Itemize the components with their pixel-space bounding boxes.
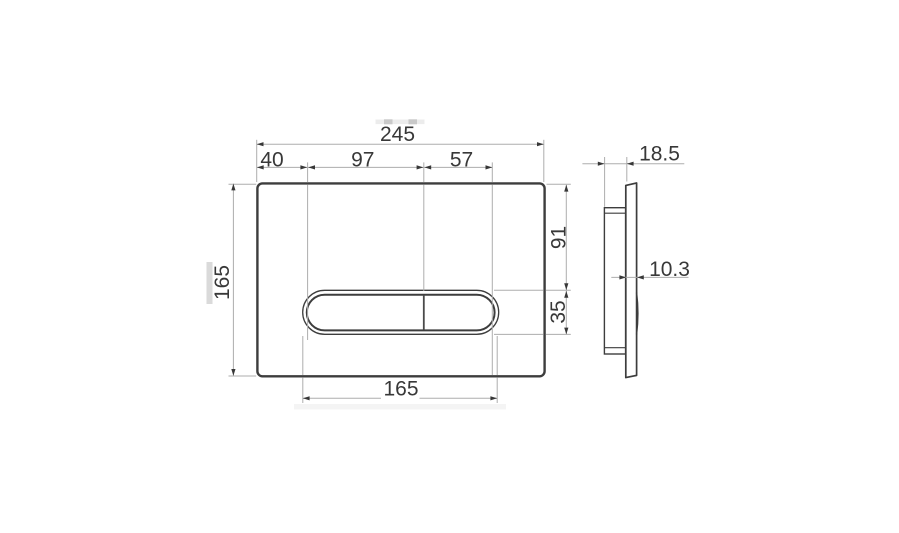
svg-text:40: 40 [260,149,283,172]
svg-text:165: 165 [383,378,418,401]
svg-text:18.5: 18.5 [639,142,680,165]
svg-text:10.3: 10.3 [649,258,690,281]
svg-text:57: 57 [450,149,473,172]
svg-text:165: 165 [211,265,234,300]
svg-text:245: 245 [380,123,415,146]
svg-text:91: 91 [548,226,571,249]
svg-text:97: 97 [351,149,374,172]
svg-text:35: 35 [547,300,570,323]
